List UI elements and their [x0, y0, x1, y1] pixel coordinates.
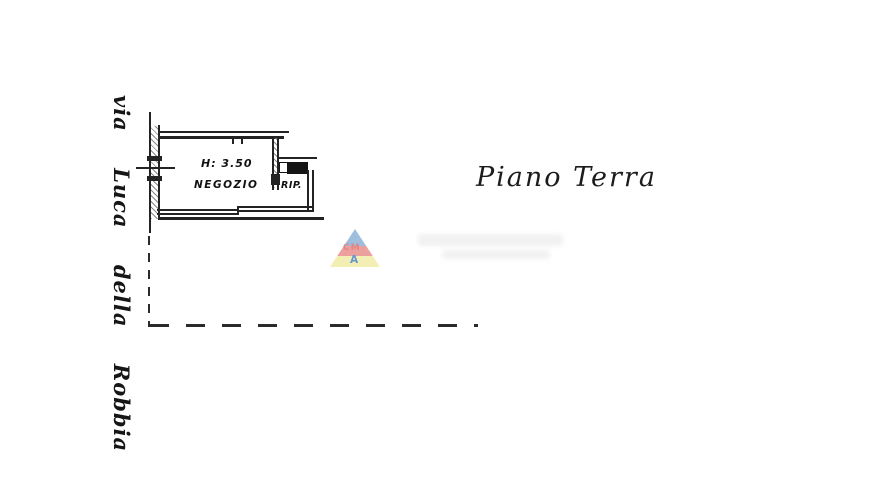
window-axis-tick	[136, 167, 175, 169]
storage-fixture-fill	[287, 162, 308, 174]
wall-top-inner	[158, 136, 284, 139]
watermark-mid-letters: CM	[343, 243, 361, 253]
wall-bottom-left-lower	[157, 213, 238, 215]
watermark-bottom-letter: A	[350, 254, 358, 266]
door-notch-right	[241, 138, 243, 144]
wall-bottom-right-upper	[238, 206, 314, 208]
street-name: via Luca della Robbia	[109, 95, 134, 401]
partition-door-jamb	[271, 174, 280, 185]
boundary-dashed-horizontal	[150, 324, 478, 327]
storage-room-label: RIP.	[281, 180, 302, 191]
shop-room-label: NEGOZIO	[194, 179, 258, 191]
watermark-text-blur-line1	[418, 234, 563, 246]
wall-bottom-left-upper	[157, 209, 238, 211]
watermark-logo: CM A	[330, 229, 380, 267]
window-jamb-bottom	[147, 176, 162, 181]
floor-title: Piano Terra	[476, 162, 657, 193]
wall-left-hatch	[151, 126, 158, 219]
base-line	[158, 217, 324, 220]
window-jamb-top	[147, 156, 162, 161]
wall-left-inner	[158, 125, 160, 220]
wall-top-outer	[158, 131, 289, 133]
wall-bottom-right-lower	[238, 210, 314, 212]
watermark-text-blur-line2	[442, 250, 550, 259]
ceiling-height-label: H: 3.50	[201, 157, 253, 170]
floorplan-scan: via Luca della Robbia H: 3.50 NEGOZIO RI…	[0, 0, 880, 496]
boundary-dashed-vertical	[148, 236, 150, 327]
storage-top-line	[277, 157, 317, 159]
door-notch-left	[232, 138, 234, 144]
